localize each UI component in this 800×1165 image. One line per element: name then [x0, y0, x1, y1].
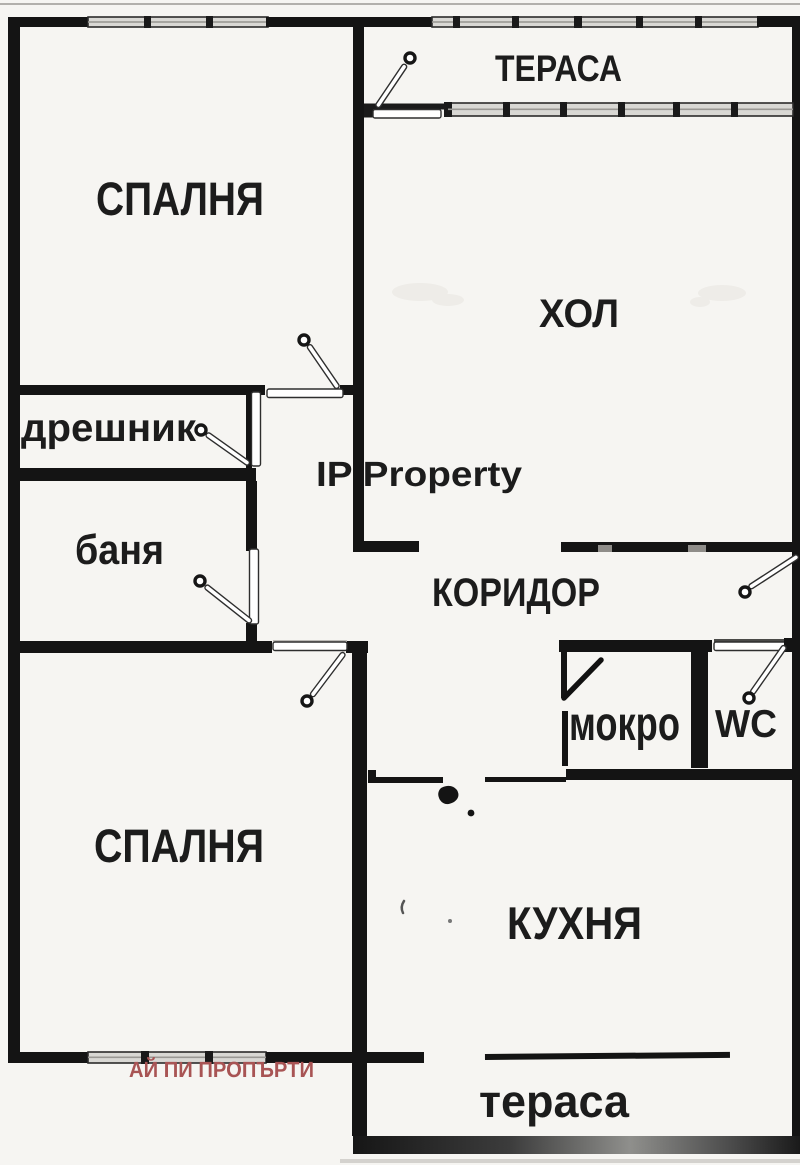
svg-text:КОРИДОР: КОРИДОР [432, 571, 600, 615]
svg-text:WC: WC [715, 703, 777, 746]
svg-text:IP Property: IP Property [316, 455, 523, 494]
svg-text:СПАЛНЯ: СПАЛНЯ [96, 172, 264, 225]
svg-text:баня: баня [75, 526, 164, 573]
svg-text:дрешник: дрешник [21, 407, 196, 450]
svg-text:АЙ ПИ ПРОПЪРТИ: АЙ ПИ ПРОПЪРТИ [129, 1057, 314, 1082]
svg-text:ТЕРАСА: ТЕРАСА [495, 48, 622, 89]
svg-text:мокро: мокро [569, 698, 680, 751]
svg-text:КУХНЯ: КУХНЯ [507, 897, 642, 949]
svg-text:тераса: тераса [479, 1075, 629, 1127]
svg-text:ХОЛ: ХОЛ [539, 292, 619, 336]
svg-text:СПАЛНЯ: СПАЛНЯ [94, 819, 264, 872]
